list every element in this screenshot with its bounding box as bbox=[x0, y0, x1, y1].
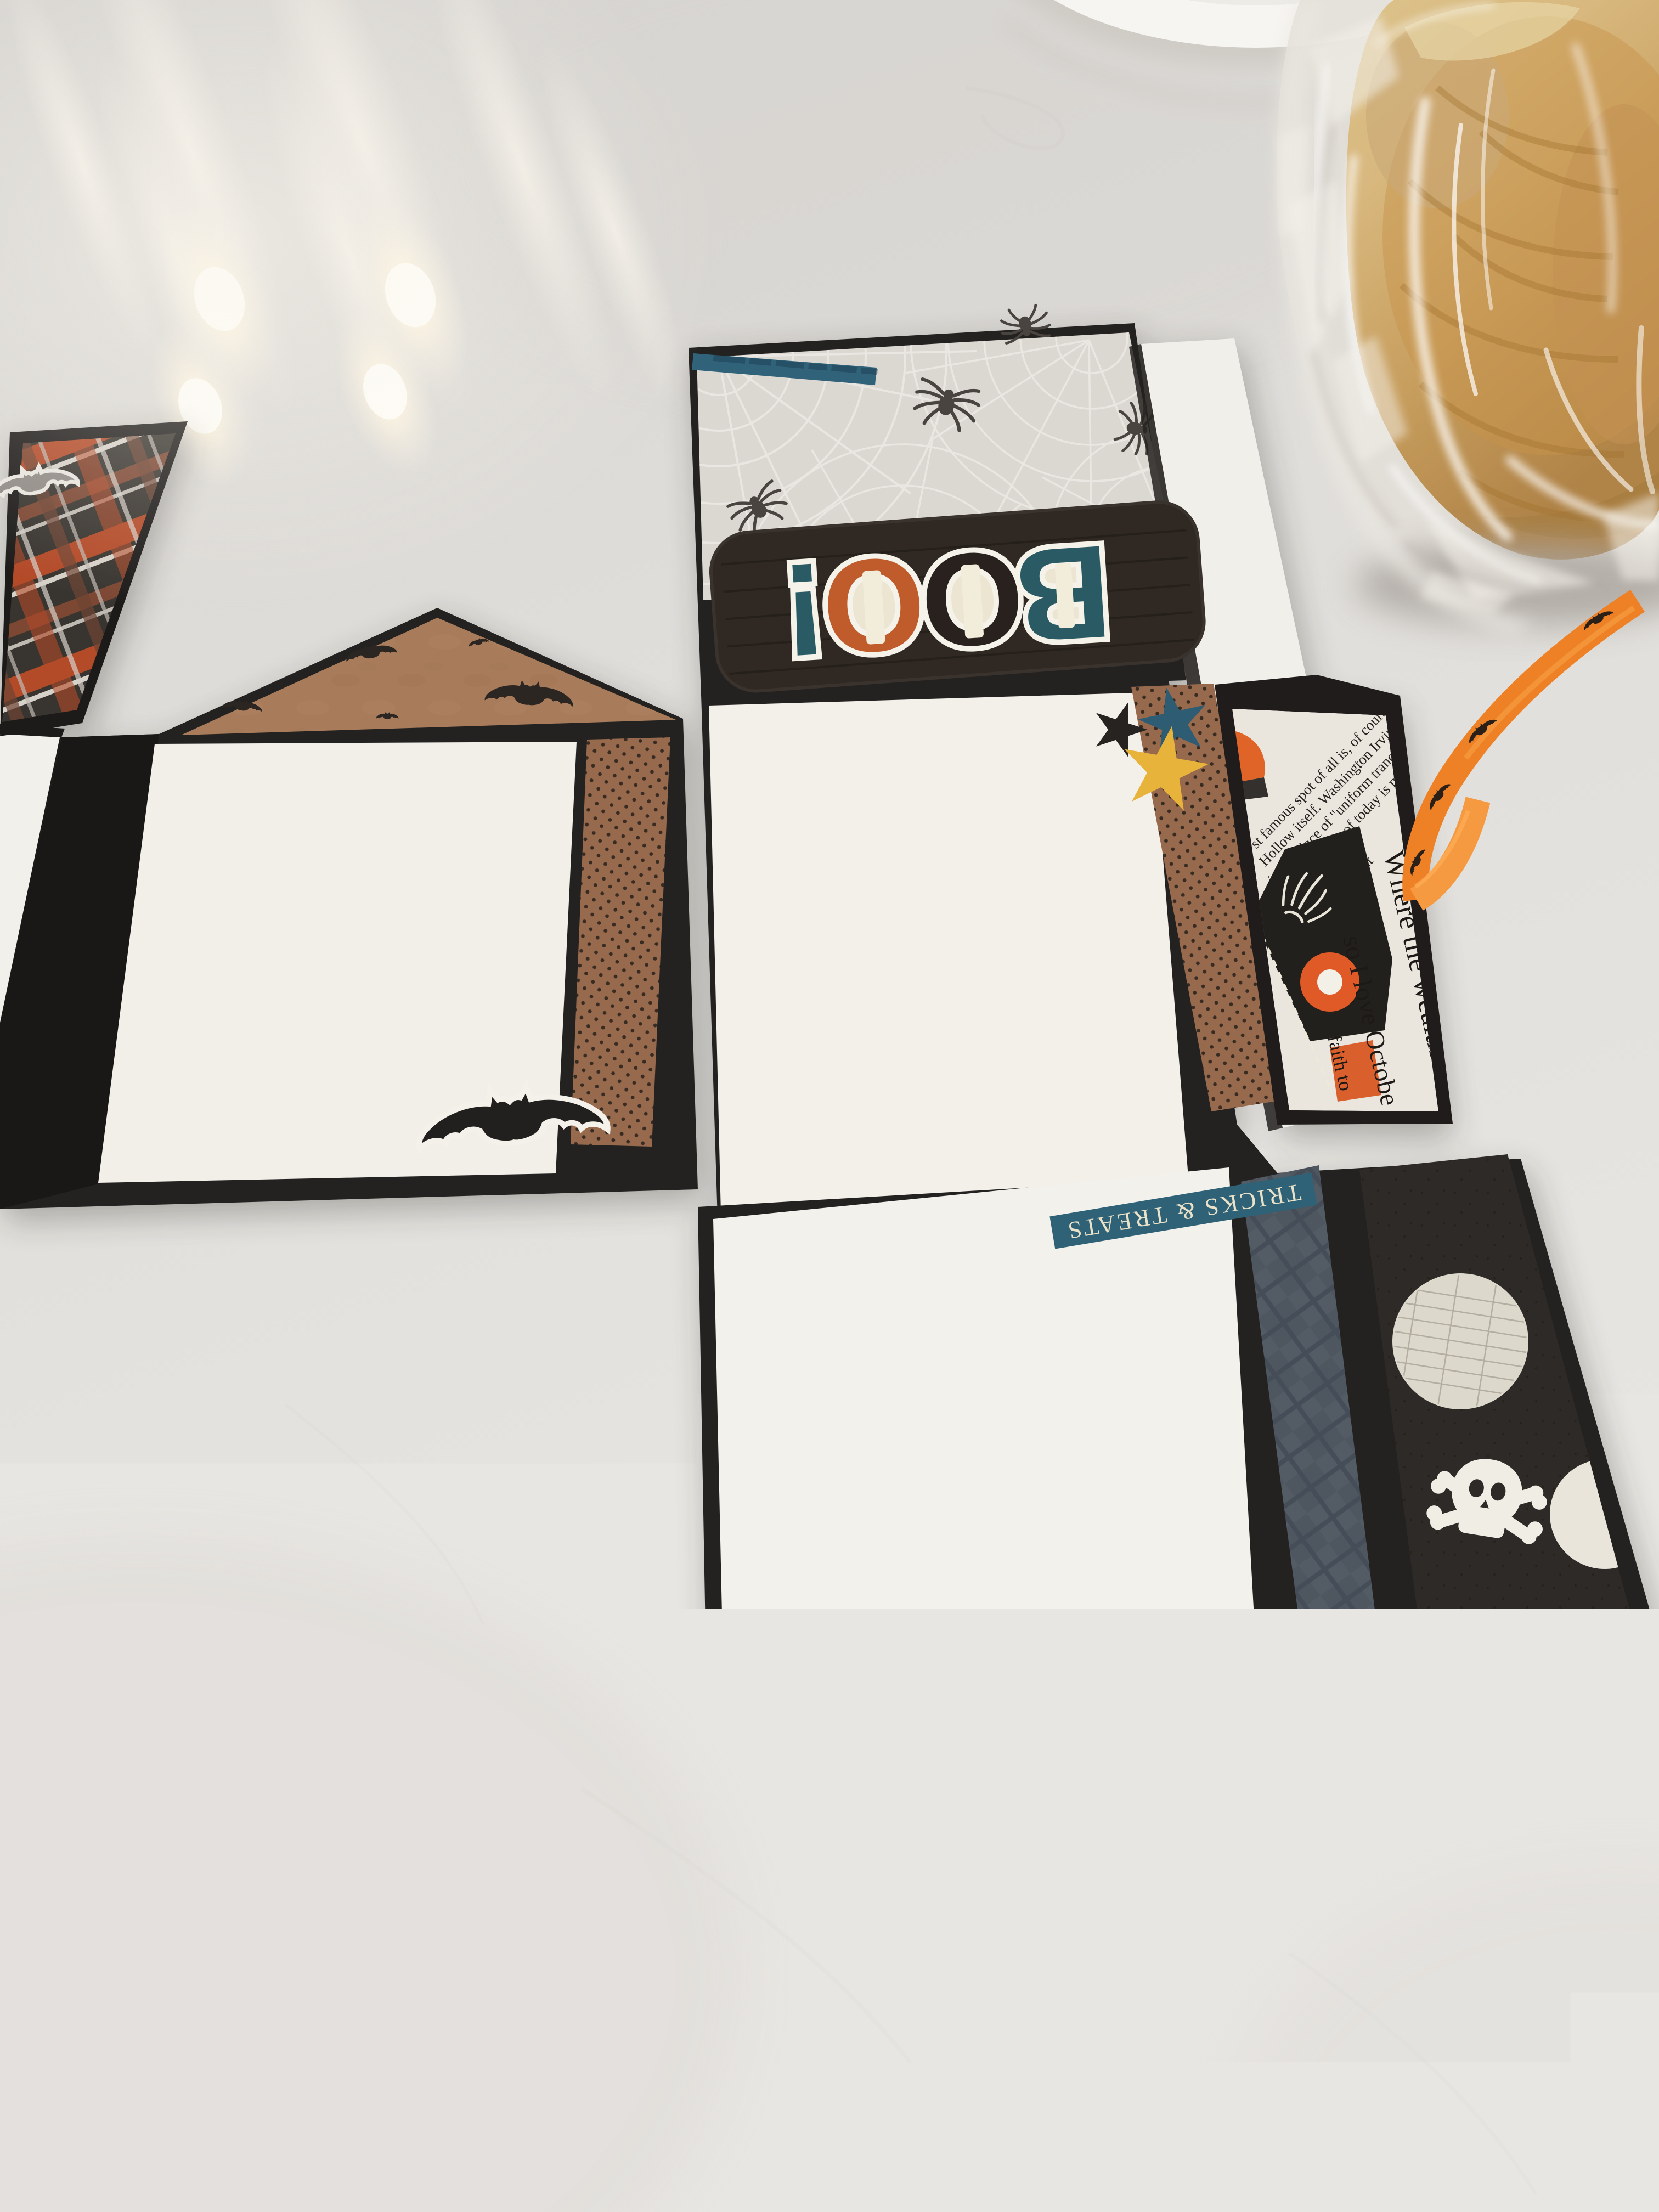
svg-text:!: ! bbox=[778, 535, 831, 685]
